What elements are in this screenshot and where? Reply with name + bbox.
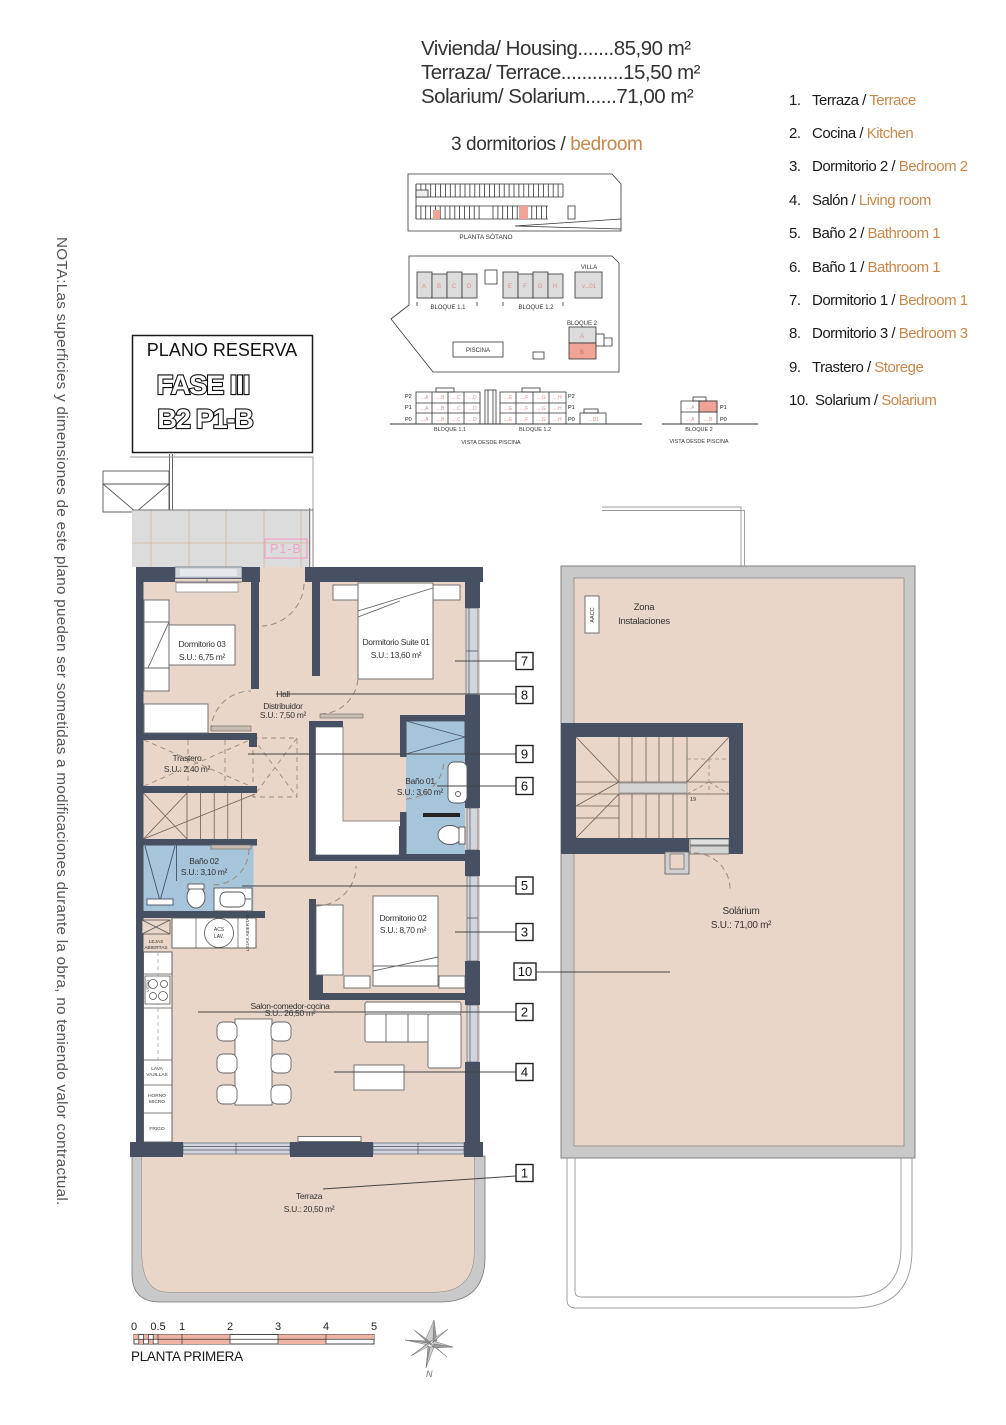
svg-text:FRIGO: FRIGO [149,1126,164,1132]
svg-text:....A: ....A [420,417,430,423]
svg-text:Dormitorio 02: Dormitorio 02 [379,913,427,923]
svg-text:0.5: 0.5 [150,1321,165,1333]
svg-text:....B: ....B [436,395,446,401]
svg-text:BLOQUE 1.1: BLOQUE 1.1 [430,305,466,311]
svg-text:P1: P1 [405,405,412,411]
svg-text:ABIERTAS: ABIERTAS [144,945,167,951]
svg-text:P1: P1 [720,405,727,411]
svg-text:B2 P1-B: B2 P1-B [157,404,253,434]
svg-text:BLOQUE 1.2: BLOQUE 1.2 [518,305,554,311]
svg-text:MICRO: MICRO [149,1099,165,1105]
svg-text:AACC: AACC [590,607,596,622]
svg-text:....C: ....C [451,417,461,423]
svg-text:S.U.: 20,50 m²: S.U.: 20,50 m² [284,1204,335,1214]
svg-text:5: 5 [521,878,528,893]
svg-text:....G: ....G [536,395,546,401]
svg-text:S.U.: 2,40 m²: S.U.: 2,40 m² [164,764,211,774]
svg-text:S.U.: 26,50 m²: S.U.: 26,50 m² [265,1008,316,1018]
svg-text:PLANO RESERVA: PLANO RESERVA [147,340,297,360]
svg-text:S.U.: 13,60 m²: S.U.: 13,60 m² [371,650,422,660]
svg-text:Baño 1 / Bathroom 1: Baño 1 / Bathroom 1 [812,259,940,276]
svg-text:....E: ....E [504,406,514,412]
svg-text:Vivienda/ Housing.......85,90: Vivienda/ Housing.......85,90 m² [421,37,691,60]
svg-text:8.: 8. [789,325,801,342]
svg-text:S.U.: 3,10 m²: S.U.: 3,10 m² [181,867,228,877]
svg-text:A: A [422,284,426,290]
svg-text:H: H [553,284,557,290]
svg-text:P2: P2 [568,394,575,400]
svg-text:....F: ....F [520,417,529,423]
svg-text:VILLA: VILLA [581,265,597,271]
svg-text:....C: ....C [451,406,461,412]
svg-text:FASE III: FASE III [157,370,250,400]
svg-text:1: 1 [179,1321,185,1333]
svg-text:9.: 9. [789,359,801,376]
svg-text:5.: 5. [789,225,801,242]
svg-text:ACS: ACS [214,927,225,933]
svg-text:6: 6 [521,779,528,794]
svg-text:Baño 2 / Bathroom 1: Baño 2 / Bathroom 1 [812,225,940,242]
svg-text:3.: 3. [789,158,801,175]
svg-text:Baño 01: Baño 01 [405,776,435,786]
svg-text:VISTA DESDE PISCINA: VISTA DESDE PISCINA [461,440,521,446]
svg-text:Terraza / Terrace: Terraza / Terrace [812,92,916,109]
svg-text:Salón / Living room: Salón / Living room [812,192,931,209]
svg-text:E: E [508,284,512,290]
svg-text:....A: ....A [686,417,696,423]
svg-text:NOTA:Las superficies y dimensi: NOTA:Las superficies y dimensiones de es… [53,237,70,1206]
svg-text:2: 2 [521,1005,528,1020]
svg-text:P0: P0 [568,417,575,423]
svg-text:Dormitorio 2 / Bedroom 2: Dormitorio 2 / Bedroom 2 [812,158,968,175]
svg-text:Dormitorio Suite 01: Dormitorio Suite 01 [362,637,430,647]
svg-text:N: N [426,1369,433,1379]
svg-text:....D: ....D [467,417,477,423]
svg-text:S.U.: 8,70 m²: S.U.: 8,70 m² [380,925,427,935]
svg-text:Instalaciones: Instalaciones [618,616,670,627]
svg-text:8: 8 [521,688,528,703]
svg-text:PLANTA PRIMERA: PLANTA PRIMERA [131,1349,243,1364]
svg-text:Dormitorio 03: Dormitorio 03 [178,639,226,649]
svg-text:....E: ....E [504,417,514,423]
svg-text:Cocina / Kitchen: Cocina / Kitchen [812,125,913,142]
svg-text:....G: ....G [536,406,546,412]
svg-text:D: D [467,284,472,290]
svg-text:10: 10 [518,964,532,979]
svg-text:....C: ....C [451,395,461,401]
svg-text:1.: 1. [789,92,801,109]
svg-text:....A: ....A [420,406,430,412]
svg-text:Trastero: Trastero [173,753,203,763]
svg-text:....A: ....A [420,395,430,401]
svg-text:LEJAS: LEJAS [149,939,164,945]
svg-text:S.U.: 6,75 m²: S.U.: 6,75 m² [179,652,226,662]
svg-text:3: 3 [521,925,528,940]
svg-text:Terraza: Terraza [296,1191,323,1201]
svg-text:....D1: ....D1 [587,417,599,423]
svg-text:3 dormitorios / bedroom: 3 dormitorios / bedroom [451,134,642,155]
svg-text:....B: ....B [704,417,714,423]
svg-text:C: C [452,284,457,290]
svg-text:4: 4 [323,1321,329,1333]
svg-text:....E: ....E [504,395,514,401]
svg-text:P1: P1 [568,405,575,411]
svg-text:VAJILLAS: VAJILLAS [146,1072,168,1078]
svg-text:7.: 7. [789,292,801,309]
svg-text:....B: ....B [436,406,446,412]
svg-text:....H: ....H [552,395,562,401]
svg-text:LAVA: LAVA [151,1066,163,1072]
svg-text:P2: P2 [405,394,412,400]
svg-text:P0: P0 [720,417,727,423]
svg-text:Zona: Zona [634,602,655,613]
svg-text:4: 4 [521,1065,528,1080]
svg-text:BLOQUE 1.1: BLOQUE 1.1 [434,427,466,433]
svg-text:2: 2 [227,1321,233,1333]
svg-text:....B: ....B [436,417,446,423]
svg-text:0: 0 [131,1321,137,1333]
svg-text:....F: ....F [520,395,529,401]
svg-text:19: 19 [690,797,696,803]
svg-text:....F: ....F [520,406,529,412]
svg-text:5: 5 [371,1321,377,1333]
svg-text:Trastero / Storege: Trastero / Storege [812,359,923,376]
svg-text:VISTA DESDE PISCINA: VISTA DESDE PISCINA [669,439,729,445]
svg-text:S.U.: 71,00 m²: S.U.: 71,00 m² [711,920,772,931]
svg-text:3: 3 [275,1321,281,1333]
svg-text:9: 9 [521,747,528,762]
svg-text:6.: 6. [789,259,801,276]
svg-text:BLOQUE 2: BLOQUE 2 [685,427,713,433]
svg-text:....A: ....A [686,405,696,411]
svg-text:P0: P0 [405,417,412,423]
svg-text:Dormitorio 1 / Bedroom 1: Dormitorio 1 / Bedroom 1 [812,292,968,309]
svg-text:P1-B: P1-B [270,542,302,556]
svg-text:....H: ....H [552,417,562,423]
svg-text:Terraza/ Terrace............15: Terraza/ Terrace............15,50 m² [421,61,701,84]
svg-text:....D: ....D [467,395,477,401]
svg-text:Solarium/ Solarium......71,00: Solarium/ Solarium......71,00 m² [421,85,694,108]
svg-text:2.: 2. [789,125,801,142]
svg-text:....H: ....H [552,406,562,412]
svg-text:1: 1 [521,1166,528,1181]
svg-text:7: 7 [521,654,528,669]
svg-text:....G: ....G [536,417,546,423]
svg-text:10.: 10. [789,392,808,409]
svg-text:S.U.: 7,50 m²: S.U.: 7,50 m² [260,710,307,720]
svg-text:4.: 4. [789,192,801,209]
svg-text:F: F [523,284,527,290]
svg-text:PLANTA SÓTANO: PLANTA SÓTANO [459,232,512,241]
svg-text:PISCINA: PISCINA [466,348,490,354]
svg-text:Dormitorio 3 / Bedroom 3: Dormitorio 3 / Bedroom 3 [812,325,968,342]
svg-text:VITRO: VITRO [145,980,150,992]
svg-text:BLOQUE 1.2: BLOQUE 1.2 [519,427,551,433]
svg-text:Solárium: Solárium [722,906,759,917]
svg-text:....D: ....D [467,406,477,412]
svg-text:v...01: v...01 [582,284,597,290]
svg-text:BLOQUE 2: BLOQUE 2 [567,321,598,327]
svg-text:Solarium / Solarium: Solarium / Solarium [815,392,936,409]
svg-text:A: A [580,334,584,340]
svg-text:LAV.: LAV. [214,934,224,940]
svg-text:Baño 02: Baño 02 [189,856,219,866]
svg-text:B: B [437,284,441,290]
svg-text:B: B [580,350,584,356]
svg-text:G: G [538,284,543,290]
svg-text:HORNO: HORNO [148,1093,166,1099]
svg-text:LEJAS ABIERTAS: LEJAS ABIERTAS [245,915,250,952]
